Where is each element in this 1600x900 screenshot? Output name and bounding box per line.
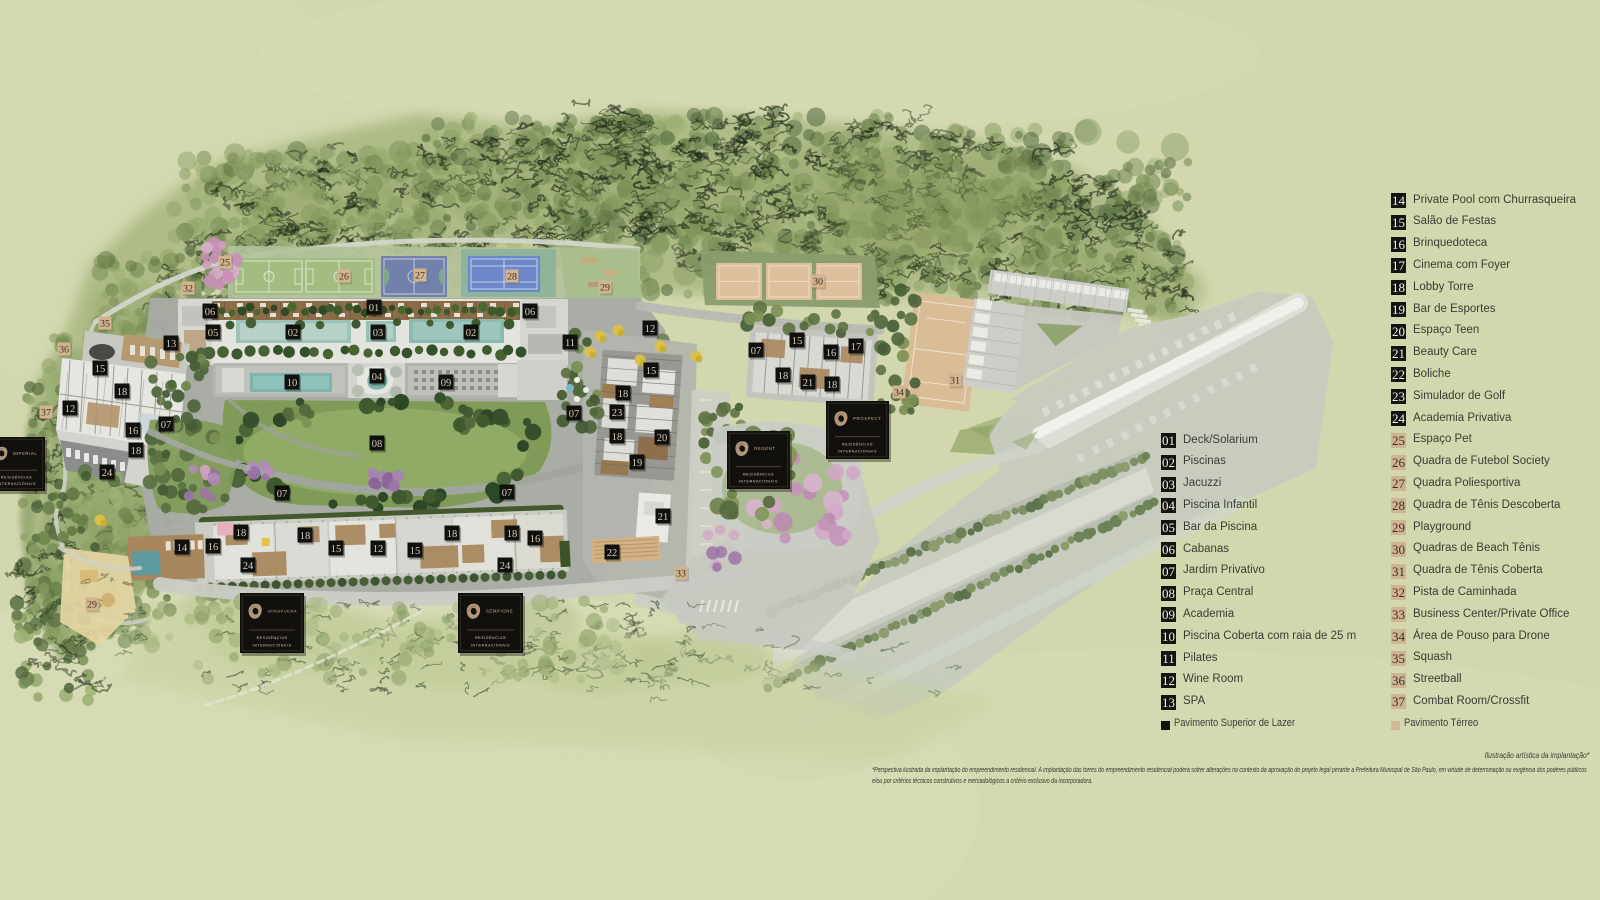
svg-text:17: 17 (851, 342, 862, 353)
svg-text:08: 08 (372, 439, 383, 450)
svg-text:34: 34 (894, 388, 904, 399)
svg-text:37: 37 (41, 408, 51, 419)
svg-text:36: 36 (59, 345, 69, 356)
svg-text:12: 12 (373, 544, 384, 555)
svg-text:21: 21 (658, 512, 669, 523)
svg-text:PROSPECT: PROSPECT (853, 416, 881, 421)
svg-text:15: 15 (792, 336, 803, 347)
svg-text:35: 35 (100, 319, 110, 330)
svg-text:18: 18 (117, 387, 128, 398)
svg-text:28: 28 (507, 272, 517, 283)
svg-text:03: 03 (373, 328, 384, 339)
svg-text:18: 18 (618, 389, 629, 400)
svg-text:06: 06 (525, 307, 536, 318)
svg-text:13: 13 (166, 339, 177, 350)
svg-text:SEMPIONE: SEMPIONE (486, 609, 513, 614)
svg-text:18: 18 (507, 529, 518, 540)
svg-text:04: 04 (372, 372, 383, 383)
svg-text:RESIDÊNCIAS: RESIDÊNCIAS (842, 442, 873, 447)
svg-text:11: 11 (565, 338, 575, 349)
svg-text:INTERNACIONAIS: INTERNACIONAIS (0, 482, 36, 486)
svg-text:18: 18 (300, 531, 311, 542)
svg-text:18: 18 (236, 528, 247, 539)
svg-text:15: 15 (95, 364, 106, 375)
svg-text:15: 15 (331, 544, 342, 555)
svg-text:27: 27 (415, 271, 425, 282)
svg-text:16: 16 (530, 534, 541, 545)
svg-text:06: 06 (205, 307, 216, 318)
svg-text:07: 07 (569, 409, 580, 420)
svg-text:18: 18 (131, 446, 142, 457)
svg-text:24: 24 (500, 561, 511, 572)
svg-text:IMPERIAL: IMPERIAL (13, 451, 38, 456)
svg-text:25: 25 (220, 258, 230, 269)
svg-text:16: 16 (128, 426, 139, 437)
svg-text:REGENT: REGENT (754, 446, 776, 451)
svg-text:INTERNACIONAIS: INTERNACIONAIS (838, 450, 877, 454)
svg-text:RESIDÊNCIAS: RESIDÊNCIAS (256, 635, 287, 640)
svg-text:12: 12 (65, 404, 76, 415)
svg-text:24: 24 (243, 561, 254, 572)
svg-text:32: 32 (183, 284, 193, 295)
svg-text:18: 18 (447, 529, 458, 540)
svg-text:19: 19 (632, 458, 643, 469)
svg-text:INTERNACIONAIS: INTERNACIONAIS (471, 643, 510, 647)
svg-text:29: 29 (87, 600, 97, 611)
svg-text:05: 05 (208, 328, 219, 339)
svg-text:14: 14 (177, 543, 188, 554)
svg-text:33: 33 (676, 569, 686, 580)
svg-text:01: 01 (369, 303, 380, 314)
svg-text:18: 18 (827, 380, 838, 391)
svg-text:INTERNACIONAIS: INTERNACIONAIS (252, 643, 291, 647)
svg-text:RESIDÊNCIAS: RESIDÊNCIAS (743, 472, 774, 477)
svg-text:23: 23 (612, 408, 623, 419)
svg-text:24: 24 (102, 468, 113, 479)
svg-text:02: 02 (466, 328, 477, 339)
svg-text:07: 07 (277, 489, 288, 500)
svg-text:15: 15 (410, 546, 421, 557)
svg-text:20: 20 (657, 433, 668, 444)
svg-text:10: 10 (287, 378, 298, 389)
svg-text:07: 07 (751, 346, 762, 357)
svg-text:22: 22 (607, 548, 618, 559)
svg-text:21: 21 (803, 378, 814, 389)
svg-text:INTERNACIONAIS: INTERNACIONAIS (739, 480, 778, 484)
svg-text:26: 26 (339, 272, 349, 283)
svg-text:IBIRAPUERA: IBIRAPUERA (268, 609, 298, 614)
svg-text:15: 15 (646, 366, 657, 377)
svg-text:RESIDÊNCIAS: RESIDÊNCIAS (475, 635, 506, 640)
svg-text:16: 16 (826, 348, 837, 359)
svg-text:RESIDÊNCIAS: RESIDÊNCIAS (1, 475, 32, 480)
svg-text:02: 02 (288, 328, 299, 339)
svg-text:29: 29 (600, 283, 610, 294)
svg-text:18: 18 (778, 371, 789, 382)
svg-text:07: 07 (161, 420, 172, 431)
svg-text:16: 16 (208, 542, 219, 553)
svg-text:18: 18 (612, 432, 623, 443)
svg-text:30: 30 (813, 277, 823, 288)
svg-text:07: 07 (502, 488, 513, 499)
svg-text:31: 31 (950, 376, 960, 387)
svg-text:12: 12 (645, 324, 656, 335)
svg-text:09: 09 (441, 378, 452, 389)
